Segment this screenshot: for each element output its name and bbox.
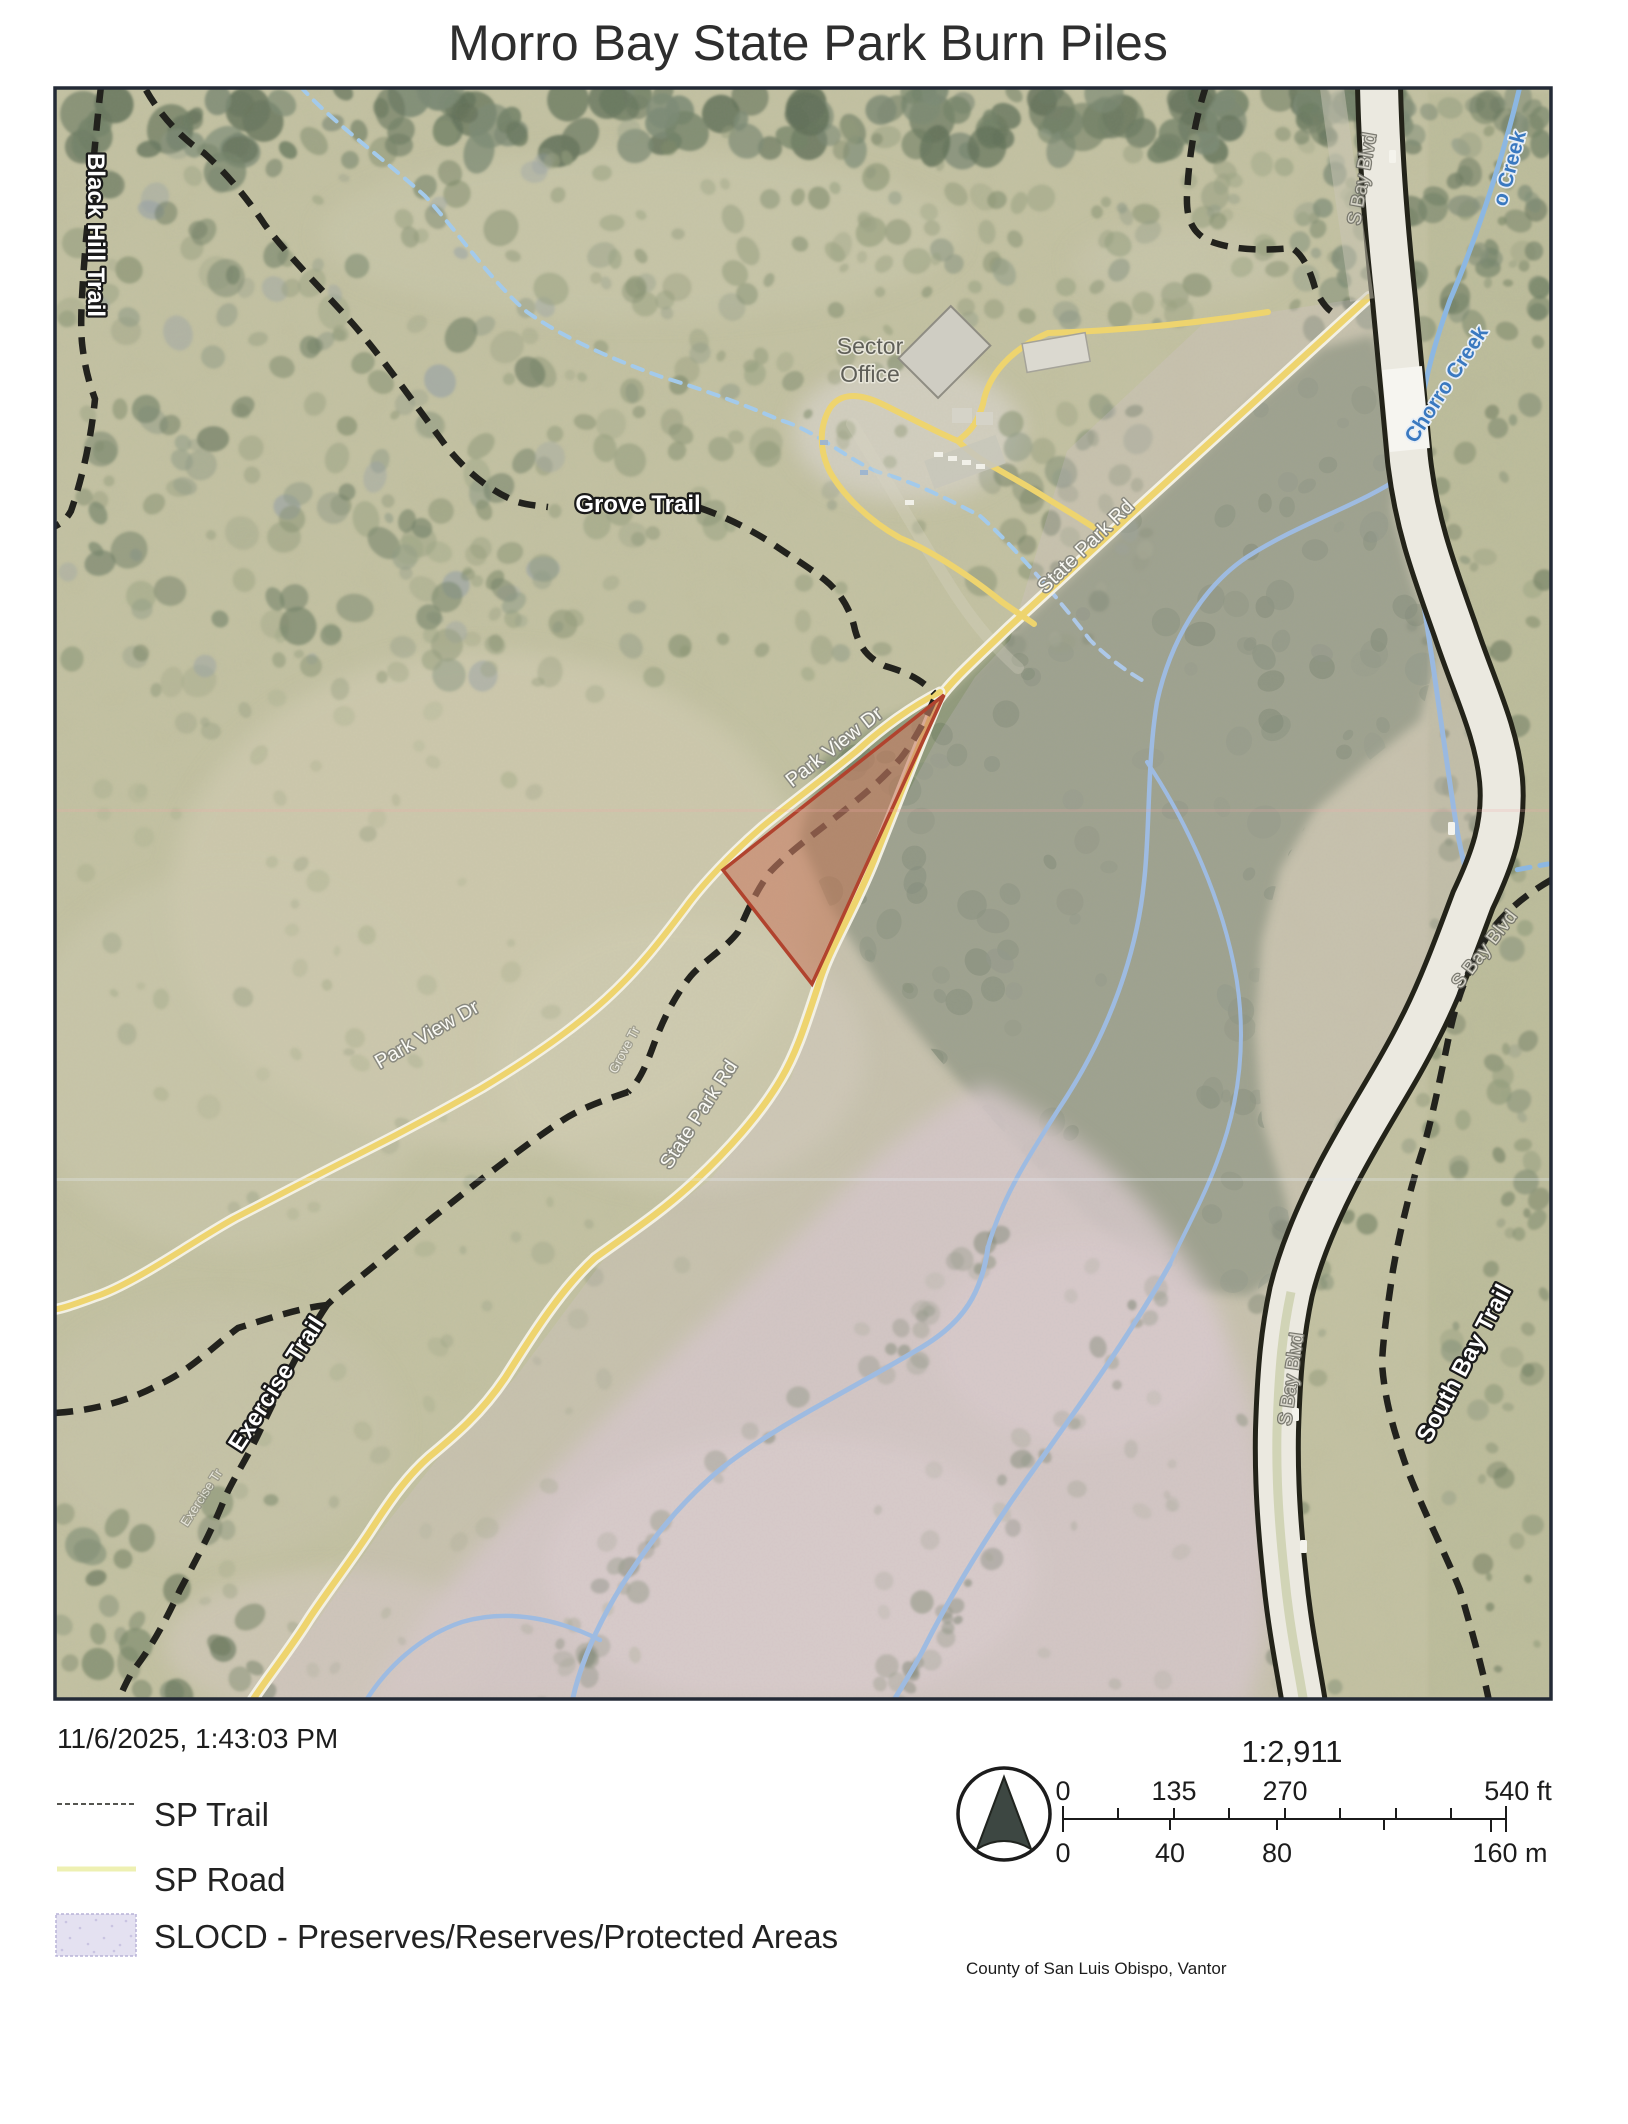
svg-text:135: 135 (1151, 1776, 1196, 1806)
svg-text:Black Hill Trail: Black Hill Trail (82, 153, 109, 317)
svg-text:SP Road: SP Road (154, 1861, 285, 1898)
svg-text:40: 40 (1155, 1838, 1185, 1868)
svg-text:Office: Office (840, 361, 900, 387)
svg-text:80: 80 (1262, 1838, 1292, 1868)
svg-text:Grove Trail: Grove Trail (575, 491, 700, 518)
svg-text:270: 270 (1262, 1776, 1307, 1806)
svg-text:160 m: 160 m (1472, 1838, 1547, 1868)
svg-text:11/6/2025, 1:43:03 PM: 11/6/2025, 1:43:03 PM (57, 1723, 338, 1754)
svg-text:0: 0 (1055, 1776, 1070, 1806)
svg-text:SP Trail: SP Trail (154, 1796, 269, 1833)
svg-text:County of San Luis Obispo, Van: County of San Luis Obispo, Vantor (966, 1959, 1227, 1978)
svg-text:540 ft: 540 ft (1484, 1776, 1552, 1806)
svg-text:Morro Bay State Park Burn Pile: Morro Bay State Park Burn Piles (448, 15, 1168, 71)
svg-text:0: 0 (1055, 1838, 1070, 1868)
svg-text:1:2,911: 1:2,911 (1241, 1734, 1342, 1769)
svg-text:SLOCD - Preserves/Reserves/Pro: SLOCD - Preserves/Reserves/Protected Are… (154, 1918, 838, 1955)
svg-text:Sector: Sector (837, 333, 904, 359)
